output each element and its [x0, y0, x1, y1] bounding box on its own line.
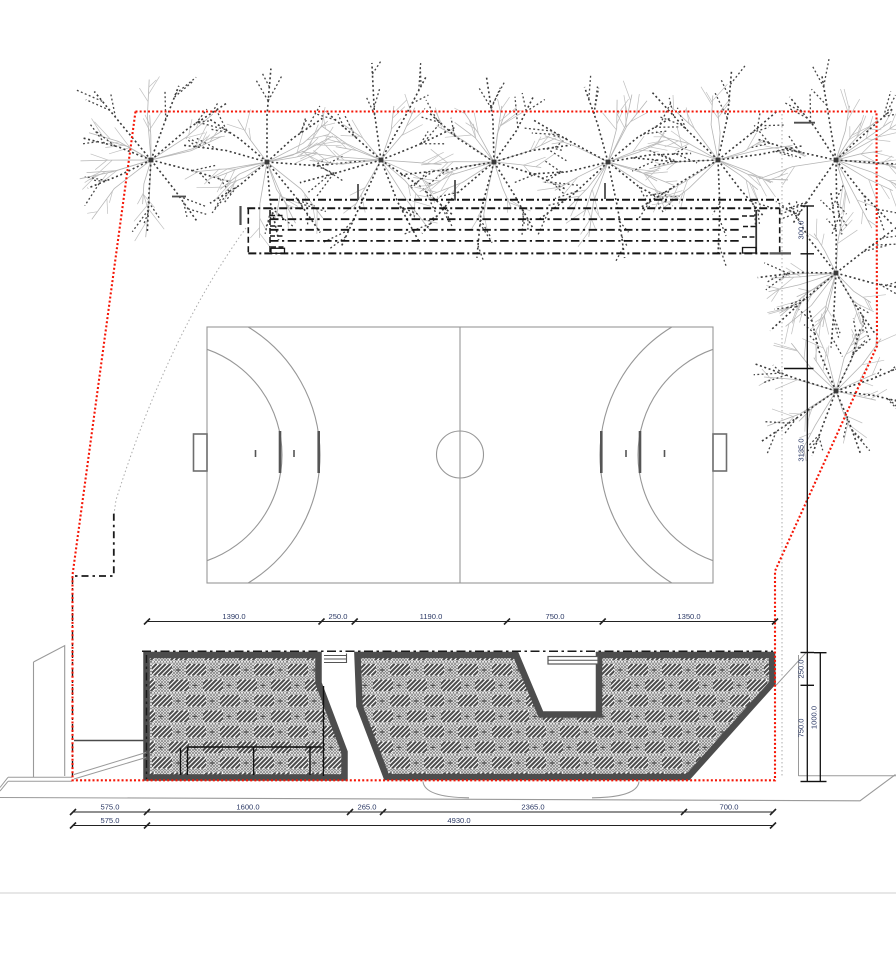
svg-text:700.0: 700.0	[719, 803, 738, 812]
svg-text:4930.0: 4930.0	[447, 816, 470, 825]
svg-text:300.0: 300.0	[797, 220, 806, 239]
svg-text:575.0: 575.0	[100, 816, 119, 825]
svg-text:250.0: 250.0	[797, 659, 806, 678]
svg-text:2365.0: 2365.0	[521, 803, 544, 812]
svg-text:1190.0: 1190.0	[420, 612, 443, 621]
svg-text:1600.0: 1600.0	[236, 803, 259, 812]
svg-text:1350.0: 1350.0	[677, 612, 700, 621]
svg-text:750.0: 750.0	[545, 612, 564, 621]
svg-text:1000.0: 1000.0	[810, 706, 819, 729]
svg-text:575.0: 575.0	[100, 803, 119, 812]
svg-text:1390.0: 1390.0	[222, 612, 245, 621]
svg-text:250.0: 250.0	[328, 612, 347, 621]
svg-text:265.0: 265.0	[357, 803, 376, 812]
svg-text:3135.0: 3135.0	[797, 438, 806, 461]
svg-text:750.0: 750.0	[797, 718, 806, 737]
